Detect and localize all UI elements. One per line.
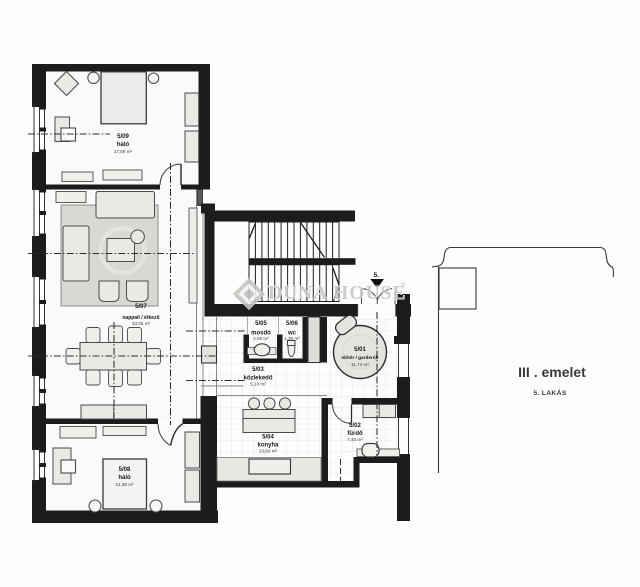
svg-text:5/04: 5/04 — [262, 435, 274, 441]
svg-text:DUNA HOUSE: DUNA HOUSE — [268, 283, 406, 304]
svg-text:11,74 m²: 11,74 m² — [351, 362, 369, 367]
svg-text:5/02: 5/02 — [349, 423, 361, 429]
svg-text:33,05 m²: 33,05 m² — [132, 321, 151, 326]
svg-text:háló: háló — [117, 142, 130, 148]
svg-text:2,95 m²: 2,95 m² — [253, 336, 269, 341]
svg-text:5/09: 5/09 — [117, 134, 129, 140]
svg-text:5.: 5. — [374, 272, 380, 279]
svg-text:5,10 m²: 5,10 m² — [250, 382, 266, 387]
svg-text:háló: háló — [118, 475, 131, 481]
svg-text:5/08: 5/08 — [119, 467, 131, 473]
svg-text:III . emelet: III . emelet — [518, 364, 586, 380]
svg-text:21,38 m²: 21,38 m² — [115, 482, 134, 487]
svg-text:5/06: 5/06 — [286, 321, 298, 327]
svg-text:1,30 m²: 1,30 m² — [284, 336, 300, 341]
svg-text:7,40 m²: 7,40 m² — [347, 437, 363, 442]
svg-text:előtér / garderób: előtér / garderób — [342, 355, 379, 360]
svg-text:17,59 m²: 17,59 m² — [114, 149, 133, 154]
svg-text:®: ® — [401, 282, 406, 289]
svg-text:13,60 m²: 13,60 m² — [259, 449, 278, 454]
svg-text:5. LAKÁS: 5. LAKÁS — [533, 388, 567, 397]
svg-text:5/03: 5/03 — [252, 367, 264, 373]
svg-text:5/05: 5/05 — [255, 321, 267, 327]
svg-text:5/07: 5/07 — [135, 304, 147, 310]
svg-text:5/01: 5/01 — [354, 347, 366, 353]
